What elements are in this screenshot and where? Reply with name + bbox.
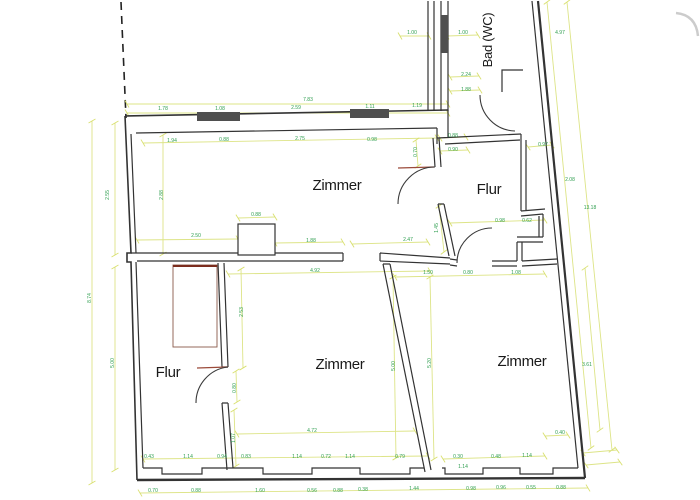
dimension-label: 4.72	[307, 428, 317, 434]
dimension-label: 2.59	[291, 105, 301, 111]
dimension-label: 5.00	[110, 358, 116, 368]
dimension-label: 5.00	[391, 361, 397, 371]
dimension-label: 0.88	[191, 488, 201, 494]
dimension-label: 0.72	[321, 454, 331, 460]
room-label: Zimmer	[312, 177, 361, 194]
dimension-label: 0.40	[555, 430, 565, 436]
dimension-label: 1.50	[423, 270, 433, 276]
dimension-label: 0.88	[251, 212, 261, 218]
floor-plan-drawing: 7.831.781.082.591.111.191.940.882.750.98…	[0, 0, 700, 500]
dimension-label: 0.62	[522, 218, 532, 224]
dimension-label: 0.97	[538, 142, 548, 148]
dimension-label: 0.70	[413, 147, 419, 157]
dimension-label: 0.94	[217, 454, 227, 460]
dimension-label: 1.14	[292, 454, 302, 460]
room-label: Flur	[156, 364, 181, 381]
dimension-label: 2.50	[191, 233, 201, 239]
dimension-label: 0.98	[495, 218, 505, 224]
dimension-label: 2.55	[105, 190, 111, 200]
dimension-label: 0.80	[232, 383, 238, 393]
dimension-label: 2.75	[295, 136, 305, 142]
dimension-label: 1.08	[511, 270, 521, 276]
dimension-label: 1.14	[458, 464, 468, 470]
dimension-label: 4.97	[555, 30, 565, 36]
dimension-label: 0.83	[241, 454, 251, 460]
dimension-label: 5.20	[427, 358, 433, 368]
dimension-label: 2.08	[565, 177, 575, 183]
dimension-label: 1.19	[412, 103, 422, 109]
dimension-label: 1.00	[458, 30, 468, 36]
window	[350, 109, 389, 118]
dimension-label: 1.00	[407, 30, 417, 36]
dimension-label: 0.90	[448, 147, 458, 153]
dimension-label: 2.53	[239, 307, 245, 317]
dimension-label: 1.07	[231, 433, 237, 443]
dimension-label: 0.55	[526, 485, 536, 491]
dimension-label: 0.88	[219, 137, 229, 143]
dimension-label: 0.98	[466, 486, 476, 492]
floor-plan-screenshot: 7.831.781.082.591.111.191.940.882.750.98…	[0, 0, 700, 500]
dimension-label: 1.94	[167, 138, 177, 144]
dimension-label: 1.45	[434, 223, 440, 233]
dimension-label: 0.43	[144, 454, 154, 460]
dimension-label: 1.88	[306, 238, 316, 244]
dimension-label: 0.80	[463, 270, 473, 276]
window	[441, 15, 448, 53]
dimension-label: 1.88	[461, 87, 471, 93]
dimension-label: 4.92	[310, 268, 320, 274]
room-label: Bad (WC)	[480, 13, 495, 68]
dimension-label: 1.11	[365, 104, 375, 110]
column	[238, 224, 275, 255]
dimension-label: 2.88	[159, 190, 165, 200]
dimension-label: 1.14	[183, 454, 193, 460]
dimension-label: 0.96	[496, 485, 506, 491]
dimension-label: 0.30	[453, 454, 463, 460]
dimension-label: 8.74	[87, 293, 93, 303]
dimension-label: 1.08	[215, 106, 225, 112]
dimension-label: 0.48	[491, 454, 501, 460]
dimension-label: 0.56	[307, 488, 317, 494]
dimension-label: 0.88	[333, 488, 343, 494]
dimension-label: 2.24	[461, 72, 471, 78]
dimension-label: 1.44	[409, 486, 419, 492]
dimension-label: 0.70	[148, 488, 158, 494]
paper-background	[0, 0, 700, 500]
dimension-label: 1.14	[522, 453, 532, 459]
dimension-label: 2.47	[403, 237, 413, 243]
dimension-label: 0.79	[395, 454, 405, 460]
room-label: Zimmer	[497, 353, 546, 370]
window	[197, 112, 240, 121]
room-label: Zimmer	[315, 356, 364, 373]
dimension-label: 0.38	[358, 487, 368, 493]
room-label: Flur	[477, 181, 502, 198]
dimension-label: 13.18	[584, 205, 597, 211]
dimension-label: 0.98	[367, 137, 377, 143]
dimension-label: 3.61	[582, 362, 592, 368]
dimension-label: 1.60	[255, 488, 265, 494]
dimension-label: 1.14	[345, 454, 355, 460]
dimension-label: 0.88	[556, 485, 566, 491]
dimension-label: 7.83	[303, 97, 313, 103]
dimension-label: 0.88	[448, 133, 458, 139]
dimension-label: 1.78	[158, 106, 168, 112]
